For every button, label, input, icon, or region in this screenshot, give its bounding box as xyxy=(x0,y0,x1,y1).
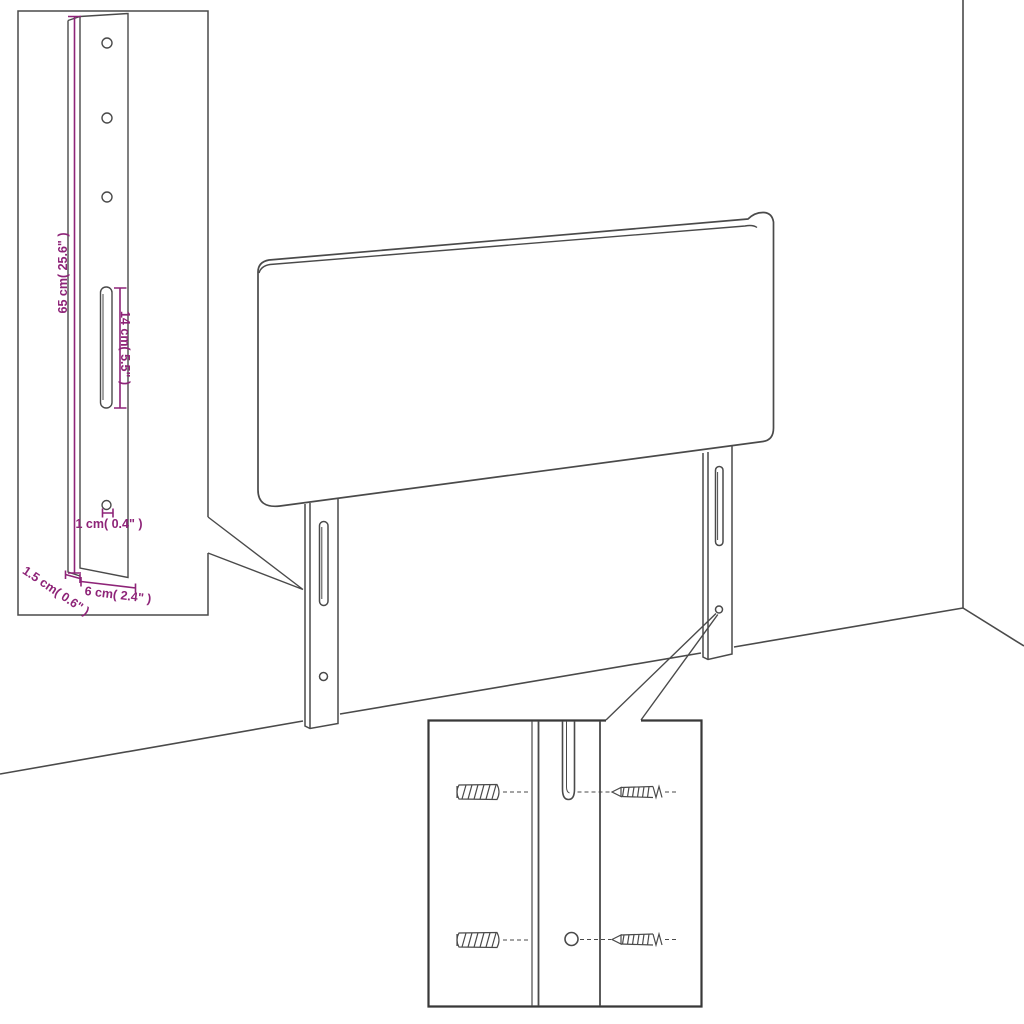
floor-line-left xyxy=(0,608,963,774)
headboard-right-leg xyxy=(703,445,732,660)
bracket-hole-3 xyxy=(102,192,112,202)
mounting-inset-border xyxy=(429,721,702,1007)
dim-label-hole-offset: 1 cm( 0.4" ) xyxy=(75,517,142,531)
mounting-detail-inset xyxy=(429,614,718,1007)
headboard-left-leg xyxy=(305,498,338,729)
bracket-hole-2 xyxy=(102,113,112,123)
mounting-hole xyxy=(565,933,578,946)
bracket-inset-callout-wedge xyxy=(208,517,303,590)
bracket-hole-4 xyxy=(102,501,111,510)
right-leg-slot xyxy=(716,467,724,546)
left-leg-slot xyxy=(320,522,329,606)
wall-plug-bottom xyxy=(457,933,499,948)
wall-corner-lines xyxy=(0,0,1024,774)
wall-plug-top xyxy=(457,785,499,800)
right-leg-hole xyxy=(716,606,723,613)
floor-line-right xyxy=(963,608,1024,646)
left-leg-hole xyxy=(320,673,328,681)
screw-top xyxy=(612,787,662,798)
dim-label-bracket-height: 65 cm( 25.6" ) xyxy=(56,233,70,314)
headboard-line-art xyxy=(0,0,1024,1024)
mounting-leg-drawing xyxy=(532,721,600,1006)
panel-top-thickness-line xyxy=(259,226,757,274)
diagram-canvas: 65 cm( 25.6" ) 14 cm( 5.5" ) 1 cm( 0.4" … xyxy=(0,0,1024,1024)
panel-outline xyxy=(258,212,774,506)
alignment-dashed-lines xyxy=(503,792,679,940)
headboard-panel xyxy=(258,212,774,506)
dim-label-slot-length: 14 cm( 5.5" ) xyxy=(118,311,132,385)
bracket-hole-1 xyxy=(102,38,112,48)
bracket-drawing xyxy=(68,14,128,578)
screw-bottom xyxy=(612,934,662,945)
bracket-slot xyxy=(101,287,113,408)
